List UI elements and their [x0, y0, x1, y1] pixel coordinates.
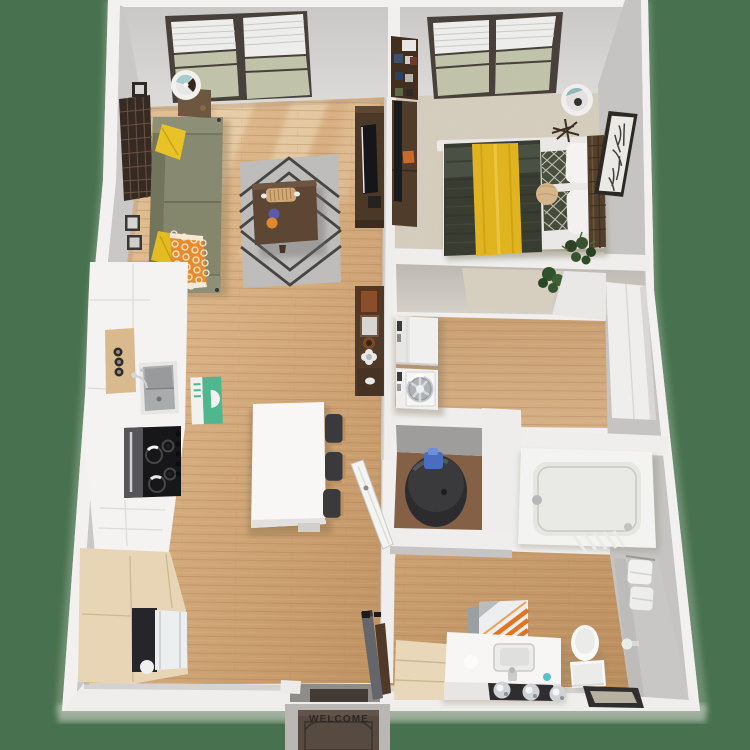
svg-text:WELCOME: WELCOME [309, 714, 369, 725]
